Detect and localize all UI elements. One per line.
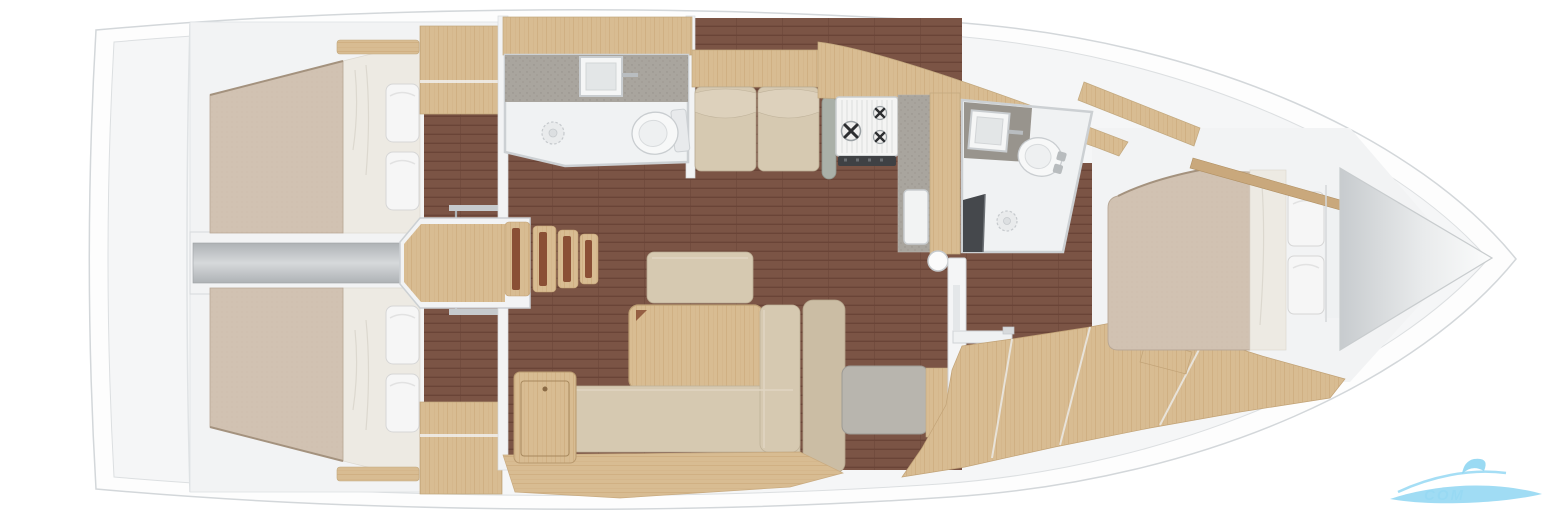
- engine-compartment-cover: [193, 243, 405, 283]
- settee-cushion: [758, 87, 819, 171]
- burner: [874, 107, 887, 120]
- sofa-backrest: [803, 300, 845, 473]
- settee-cushion: [695, 87, 756, 171]
- burner: [874, 131, 887, 144]
- watermark-logo: COM: [1390, 459, 1542, 504]
- salon-table: [629, 305, 763, 389]
- stove: [836, 97, 898, 166]
- burner: [842, 122, 861, 141]
- shelf: [337, 40, 419, 54]
- floorplan-svg: COM: [0, 0, 1560, 520]
- shower-drain: [542, 122, 564, 144]
- engine-corridor: [190, 232, 408, 294]
- wardrobe: [420, 402, 502, 494]
- storage-cabinet: [514, 372, 576, 463]
- faucet: [622, 73, 638, 77]
- watermark-swoosh: [1390, 485, 1542, 503]
- cabinet-knob: [543, 387, 548, 392]
- galley-cabinet: [930, 93, 960, 254]
- compression-post: [928, 251, 948, 271]
- shower-bench: [963, 194, 985, 252]
- wardrobe: [420, 26, 502, 114]
- bulkhead-wall: [498, 288, 508, 470]
- aft-head: [503, 17, 692, 166]
- shelf: [337, 467, 419, 481]
- yacht-floorplan-canvas: COM: [0, 0, 1560, 520]
- galley-sink: [904, 190, 928, 244]
- berth-mattress: [1108, 170, 1250, 350]
- settee-backboard: [692, 50, 822, 87]
- salon-bench: [647, 252, 753, 303]
- berth-sheet: [1250, 170, 1286, 350]
- wood-landing: [404, 224, 505, 302]
- sofa-chaise: [760, 305, 800, 452]
- shower-drain: [997, 211, 1017, 231]
- nav-seat: [842, 366, 928, 434]
- grab-post: [822, 96, 836, 179]
- salon-settee: [692, 50, 836, 179]
- overhead-cabinet: [503, 17, 692, 55]
